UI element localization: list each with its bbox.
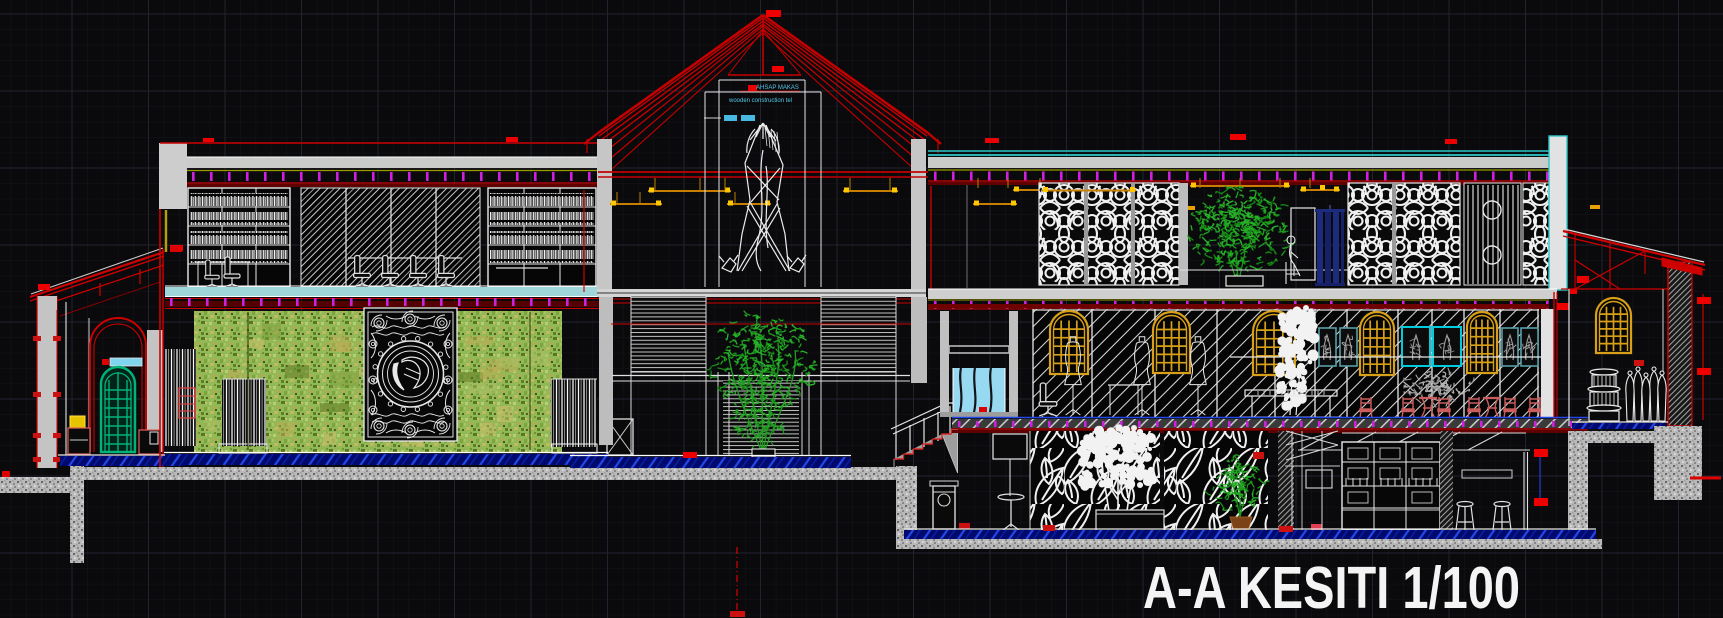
svg-text:wooden construction tel: wooden construction tel: [728, 98, 792, 104]
svg-text:A-A KESITI 1/100: A-A KESITI 1/100: [1143, 555, 1520, 618]
svg-text:AHSAP MAKAS: AHSAP MAKAS: [756, 85, 799, 91]
